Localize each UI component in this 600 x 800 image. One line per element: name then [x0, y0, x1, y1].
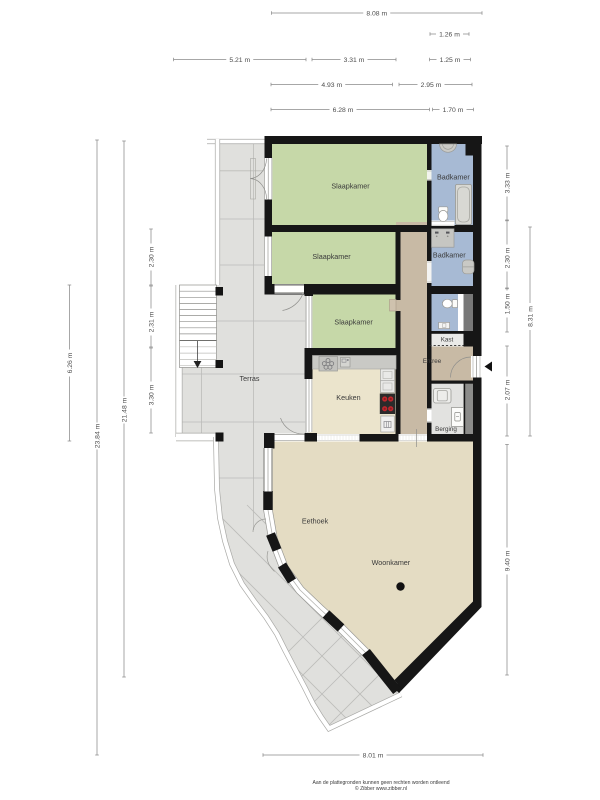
- svg-text:3.30 m: 3.30 m: [148, 384, 155, 405]
- svg-text:1.25 m: 1.25 m: [440, 57, 461, 64]
- svg-text:4.93 m: 4.93 m: [321, 82, 342, 89]
- svg-text:5.21 m: 5.21 m: [229, 57, 250, 64]
- svg-text:6.26 m: 6.26 m: [67, 352, 74, 373]
- svg-text:8.31 m: 8.31 m: [527, 306, 534, 327]
- svg-text:21.48 m: 21.48 m: [121, 397, 128, 422]
- svg-text:3.33 m: 3.33 m: [504, 172, 511, 193]
- svg-text:2.07 m: 2.07 m: [504, 379, 511, 400]
- svg-text:2.30 m: 2.30 m: [148, 246, 155, 267]
- svg-text:Slaapkamer: Slaapkamer: [312, 252, 351, 261]
- svg-text:2.30 m: 2.30 m: [504, 247, 511, 268]
- svg-text:Berging: Berging: [435, 426, 457, 433]
- svg-text:2.95 m: 2.95 m: [421, 82, 442, 89]
- svg-text:Terras: Terras: [240, 374, 260, 383]
- svg-text:© Zibber www.zibber.nl: © Zibber www.zibber.nl: [355, 785, 407, 792]
- svg-text:Kast: Kast: [441, 337, 454, 344]
- svg-text:1.26 m: 1.26 m: [439, 31, 460, 38]
- svg-text:23.84 m: 23.84 m: [94, 423, 101, 448]
- svg-text:6.28 m: 6.28 m: [333, 107, 354, 114]
- svg-text:3.31 m: 3.31 m: [344, 57, 365, 64]
- svg-text:Slaapkamer: Slaapkamer: [331, 182, 370, 191]
- svg-text:Slaapkamer: Slaapkamer: [334, 318, 373, 327]
- svg-text:Keuken: Keuken: [336, 393, 360, 402]
- svg-text:Badkamer: Badkamer: [437, 173, 470, 182]
- svg-text:1.50 m: 1.50 m: [504, 293, 511, 314]
- svg-text:Eethoek: Eethoek: [302, 516, 329, 525]
- svg-text:2.31 m: 2.31 m: [148, 311, 155, 332]
- svg-text:Entree: Entree: [423, 358, 442, 365]
- svg-text:8.08 m: 8.08 m: [366, 10, 387, 17]
- svg-text:1.70 m: 1.70 m: [443, 107, 464, 114]
- svg-text:Badkamer: Badkamer: [433, 250, 466, 259]
- svg-text:8.01 m: 8.01 m: [363, 752, 384, 759]
- svg-text:9.40 m: 9.40 m: [504, 550, 511, 571]
- svg-text:Woonkamer: Woonkamer: [372, 558, 411, 567]
